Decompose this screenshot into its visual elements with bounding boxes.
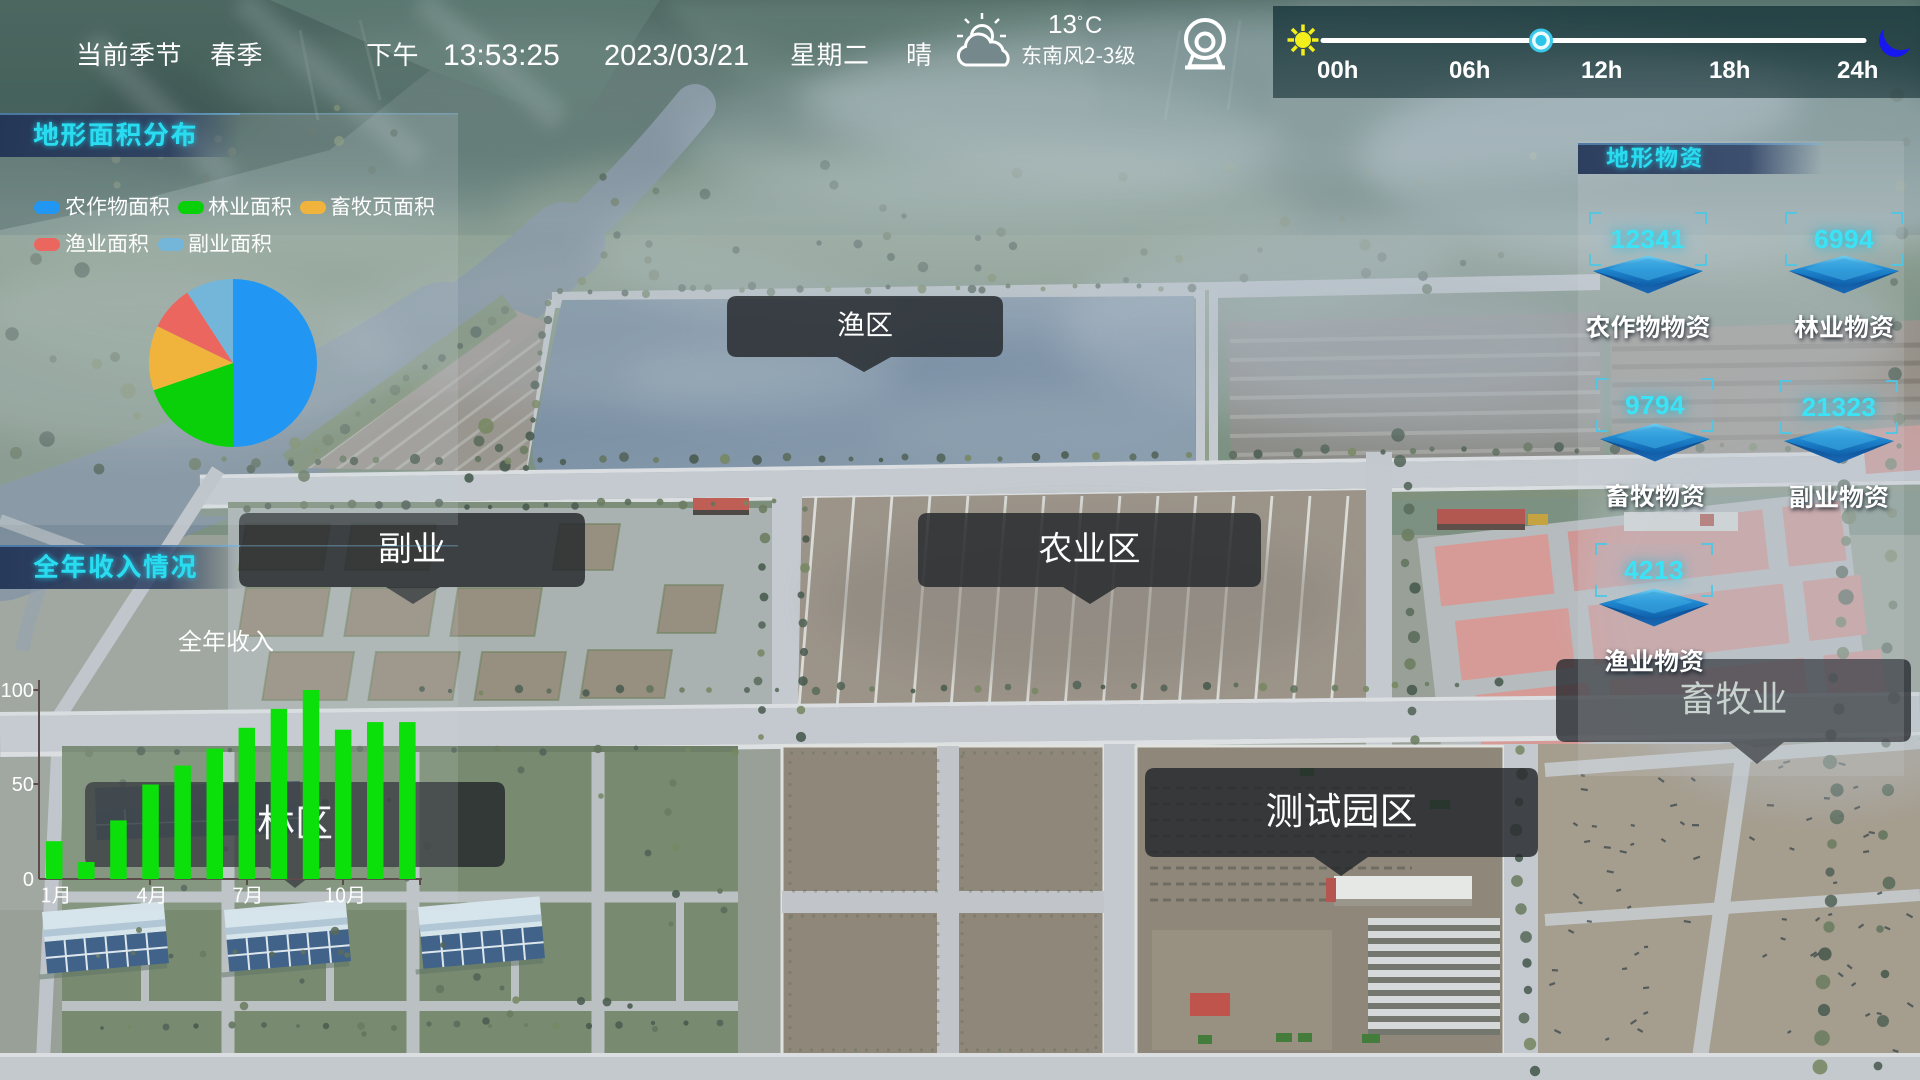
svg-text:100: 100 [1, 680, 34, 702]
svg-text:12h: 12h [1581, 57, 1622, 84]
svg-text:50: 50 [12, 774, 34, 796]
svg-text:13:53:25: 13:53:25 [443, 39, 560, 72]
svg-text:18h: 18h [1709, 57, 1750, 84]
svg-text:9794: 9794 [1625, 390, 1685, 420]
svg-text:2023/03/21: 2023/03/21 [604, 40, 749, 72]
svg-text:°: ° [1077, 13, 1083, 30]
svg-text:C: C [1085, 12, 1102, 39]
svg-text:13: 13 [1048, 9, 1077, 39]
svg-text:06h: 06h [1449, 57, 1490, 84]
svg-text:4213: 4213 [1624, 555, 1684, 585]
svg-text:00h: 00h [1317, 57, 1358, 84]
svg-text:12341: 12341 [1611, 224, 1686, 254]
svg-text:21323: 21323 [1802, 392, 1877, 422]
svg-text:6994: 6994 [1814, 224, 1874, 254]
svg-text:0: 0 [23, 869, 34, 891]
svg-text:24h: 24h [1837, 57, 1878, 84]
